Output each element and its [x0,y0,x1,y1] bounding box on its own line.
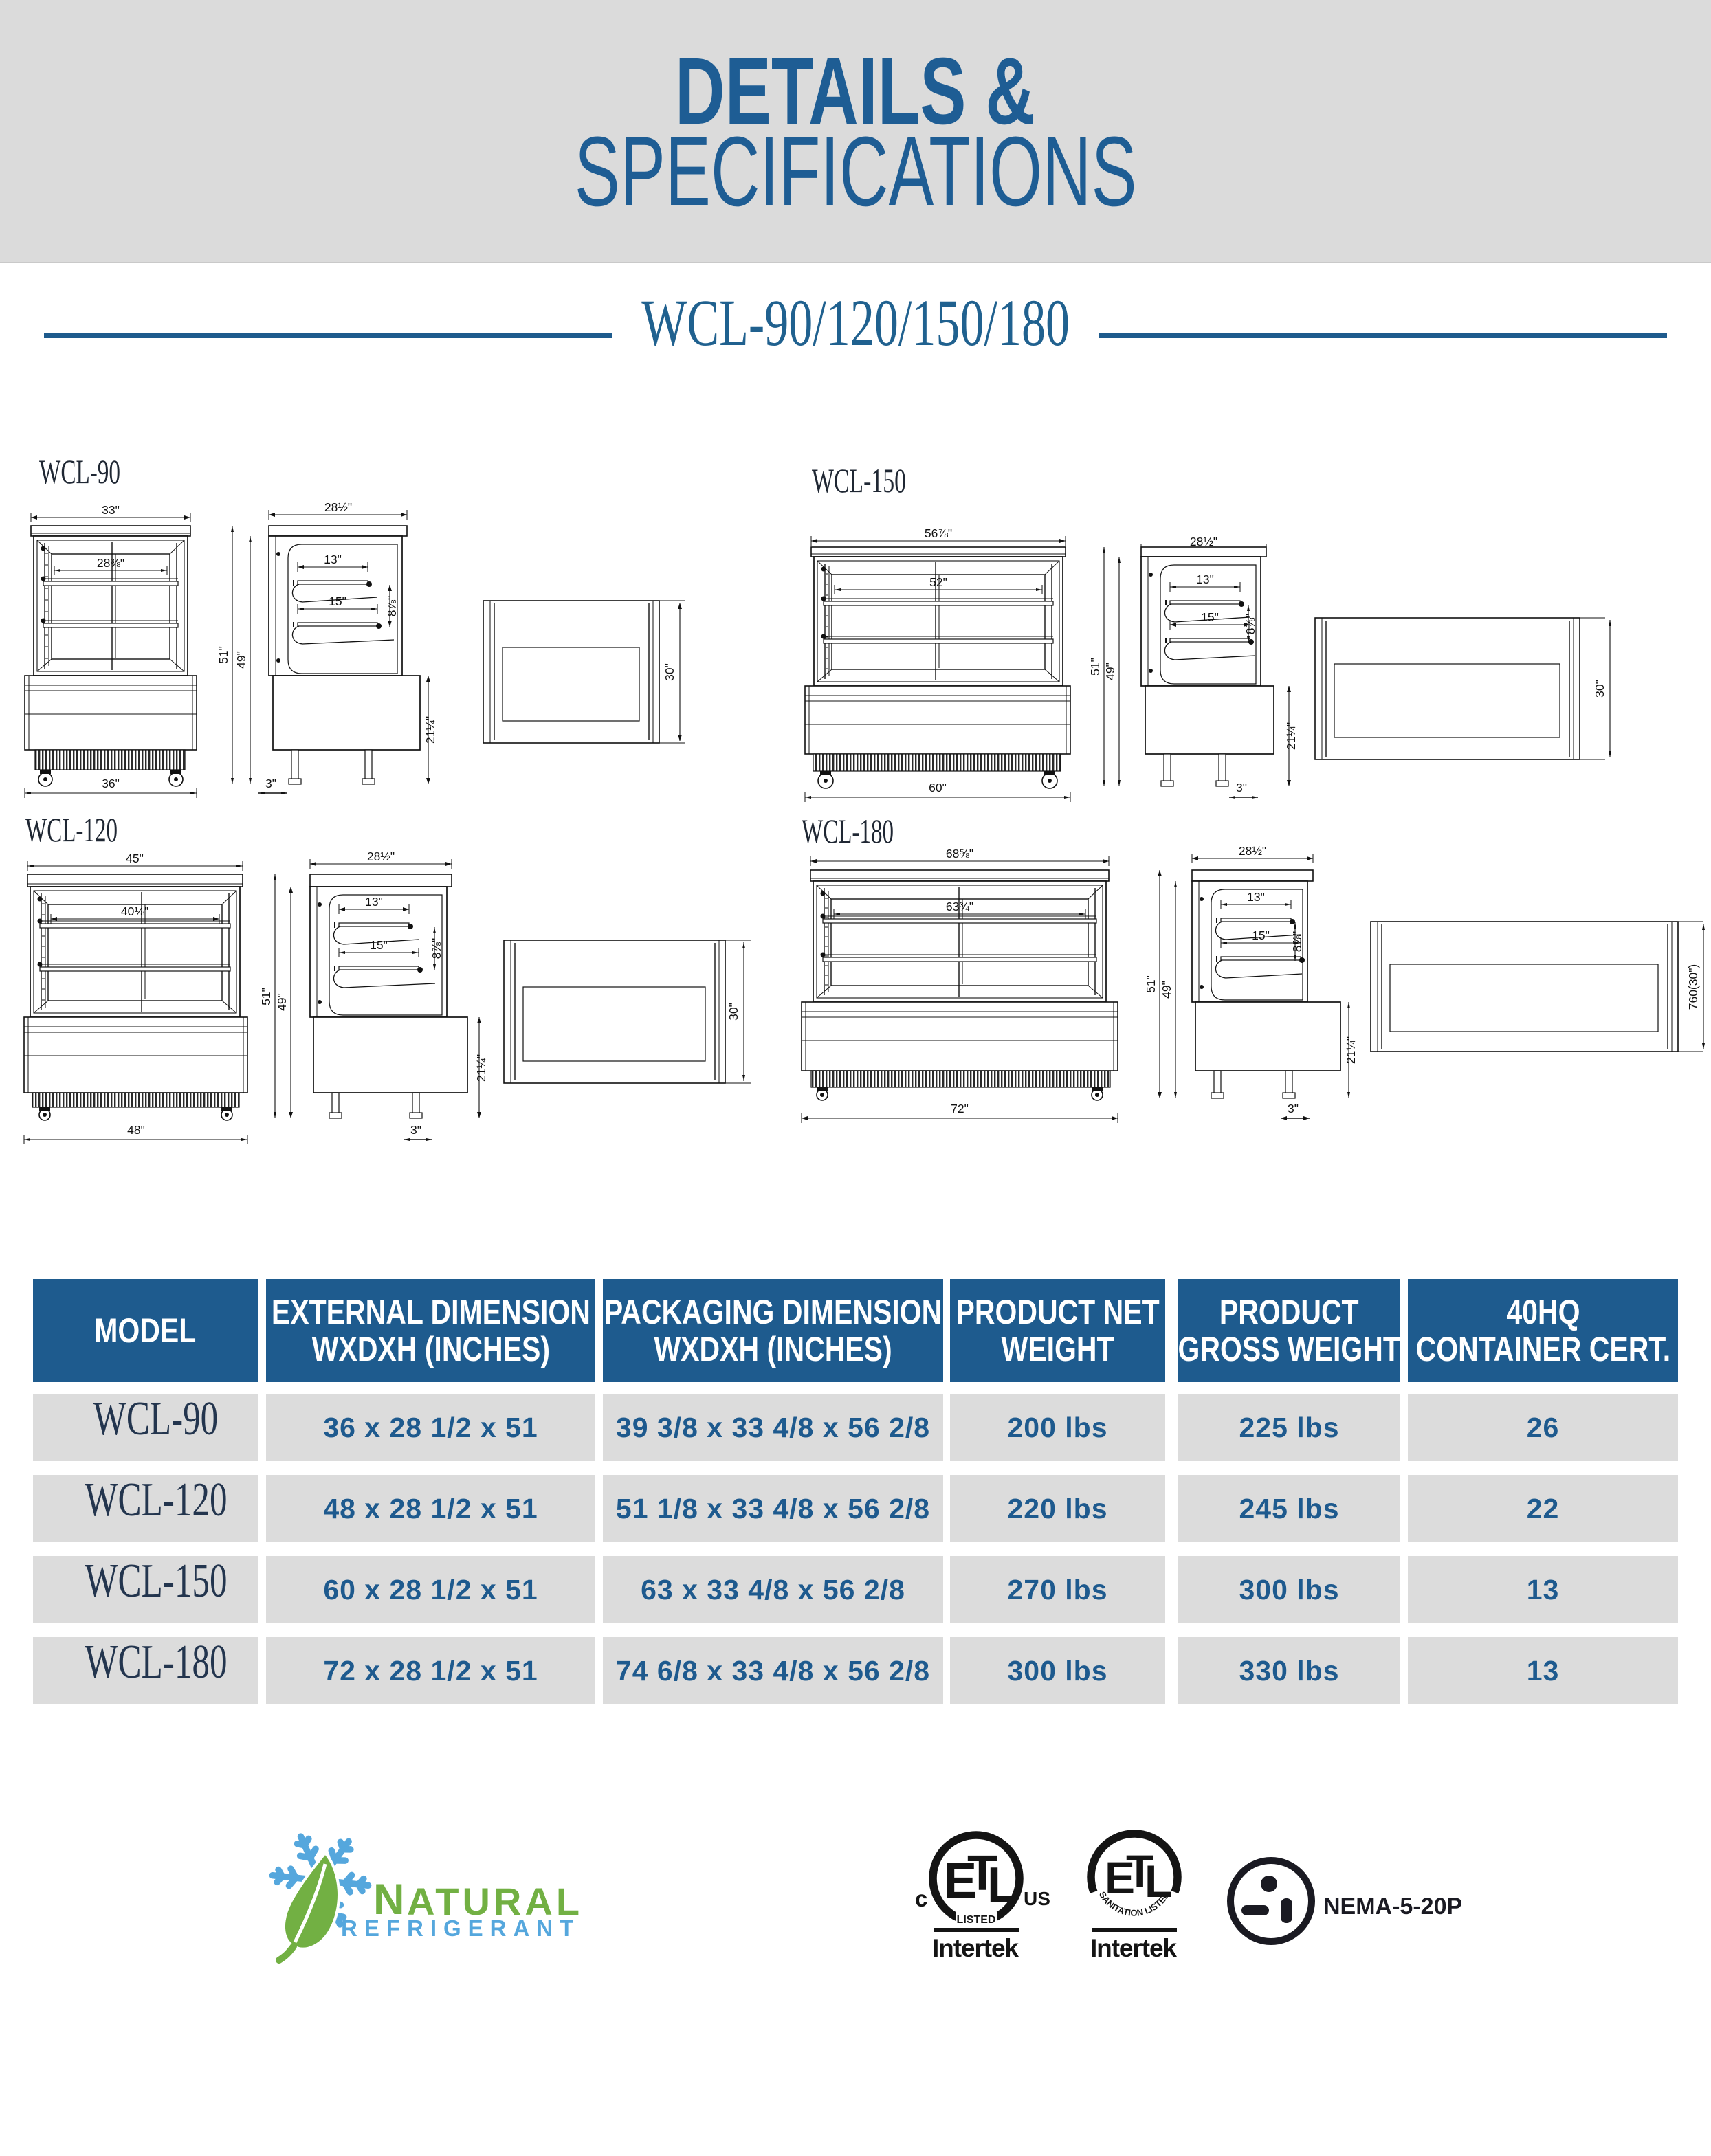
svg-text:US: US [1024,1888,1050,1909]
svg-text:Intertek: Intertek [932,1934,1019,1962]
svg-text:3": 3" [1236,781,1247,794]
svg-text:30": 30" [727,1003,740,1021]
svg-text:28½": 28½" [324,500,352,514]
svg-text:15": 15" [1252,929,1270,942]
svg-text:8⅞": 8⅞" [385,596,399,617]
svg-text:28½": 28½" [1239,844,1266,858]
svg-text:15": 15" [329,594,346,608]
svg-text:51": 51" [1088,658,1102,676]
svg-text:NEMA-5-20P: NEMA-5-20P [1323,1893,1462,1920]
svg-text:28⅜": 28⅜" [97,556,124,570]
svg-text:WCL-150: WCL-150 [812,461,906,500]
svg-text:15": 15" [370,938,388,952]
svg-text:3": 3" [265,777,276,790]
svg-text:33": 33" [102,503,120,517]
svg-text:8⅞": 8⅞" [1290,931,1304,953]
svg-text:15": 15" [1201,610,1219,624]
svg-text:30": 30" [663,663,676,681]
svg-text:8⅞": 8⅞" [430,938,443,959]
svg-text:WCL-90: WCL-90 [39,452,120,491]
svg-text:REFRIGERANT: REFRIGERANT [341,1915,580,1941]
svg-text:51": 51" [1144,975,1158,993]
svg-text:40⅛": 40⅛" [121,904,148,918]
svg-text:49": 49" [1160,981,1173,999]
svg-text:49": 49" [234,651,248,669]
svg-text:21¼": 21¼" [1284,722,1298,750]
svg-text:28½": 28½" [367,849,395,863]
svg-text:Intertek: Intertek [1090,1934,1177,1962]
svg-text:68⅝": 68⅝" [946,847,973,860]
svg-text:56⅞": 56⅞" [925,526,952,540]
svg-text:51": 51" [217,646,230,664]
svg-text:72": 72" [951,1102,969,1115]
svg-text:45": 45" [126,852,144,865]
svg-text:LISTED: LISTED [957,1914,996,1926]
svg-text:3": 3" [410,1123,421,1137]
svg-text:c: c [915,1886,927,1911]
svg-text:49": 49" [1103,663,1117,680]
svg-text:48": 48" [127,1123,145,1137]
svg-text:51": 51" [259,988,273,1005]
svg-text:21¼": 21¼" [423,716,437,744]
svg-text:L: L [987,1858,1017,1913]
svg-text:36": 36" [102,777,120,790]
svg-text:60": 60" [929,781,947,794]
svg-text:13": 13" [365,895,383,909]
svg-text:30": 30" [1593,680,1607,698]
svg-text:760(30"): 760(30") [1686,964,1700,1010]
svg-text:13": 13" [1196,573,1214,586]
svg-text:3": 3" [1288,1102,1299,1115]
svg-text:13": 13" [324,553,342,566]
svg-text:52": 52" [929,575,947,589]
svg-text:8⅞": 8⅞" [1244,614,1257,635]
svg-text:13": 13" [1247,890,1265,904]
svg-text:WCL-120: WCL-120 [25,810,118,849]
svg-text:21¼": 21¼" [1344,1036,1358,1064]
svg-text:WCL-180: WCL-180 [802,812,894,850]
svg-text:49": 49" [275,993,289,1011]
svg-text:28½": 28½" [1190,535,1217,548]
svg-text:63¾": 63¾" [946,900,973,913]
svg-text:21¼": 21¼" [474,1054,488,1082]
